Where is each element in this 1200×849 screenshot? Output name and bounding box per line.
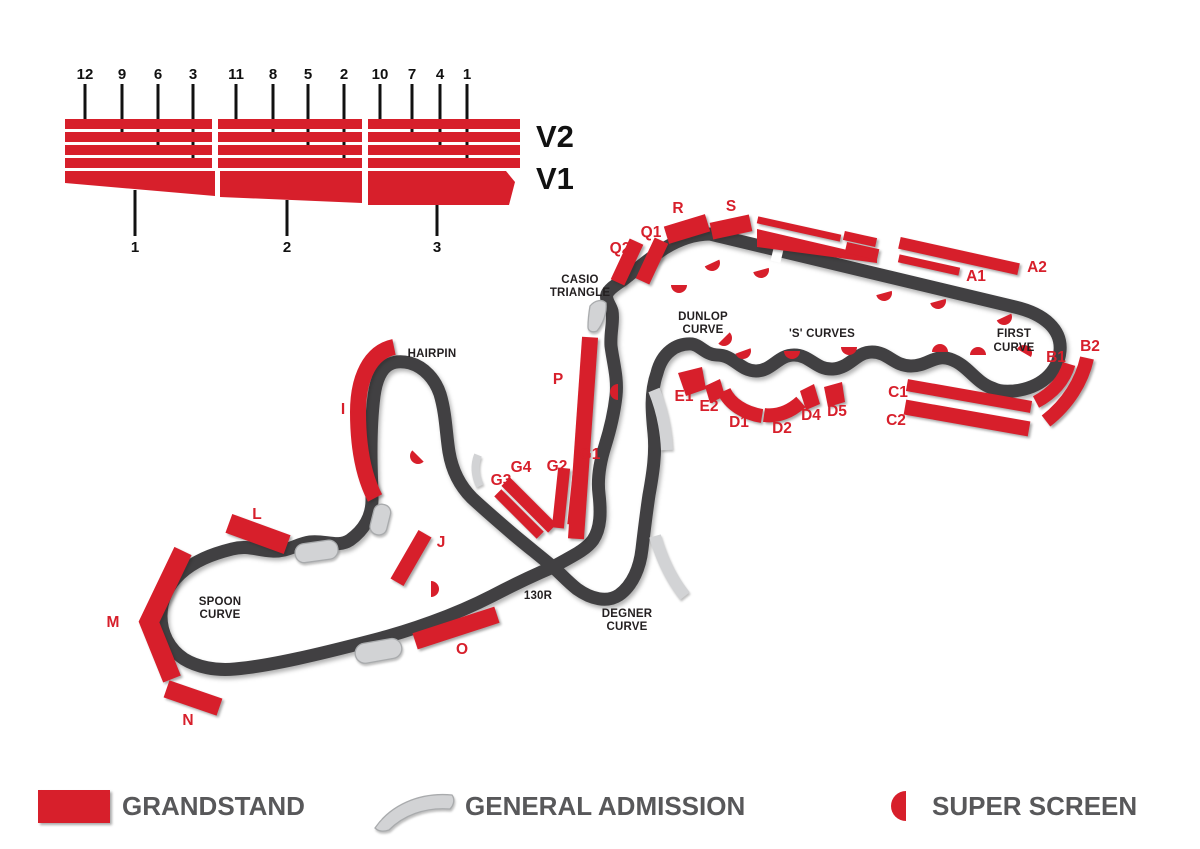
grandstand-g2[interactable] bbox=[552, 468, 570, 529]
stand-label-l: L bbox=[252, 506, 261, 523]
block-number: 3 bbox=[433, 239, 441, 256]
stand-label-d1: D1 bbox=[729, 414, 749, 431]
circuit-track bbox=[161, 234, 1060, 670]
legend: GRANDSTAND GENERAL ADMISSION SUPER SCREE… bbox=[38, 790, 1137, 831]
corner-label-first: CURVE bbox=[993, 342, 1034, 354]
v1-block-1[interactable] bbox=[65, 171, 215, 196]
v2-row[interactable] bbox=[368, 158, 520, 168]
stand-label-d4: D4 bbox=[801, 407, 821, 424]
row-number: 10 bbox=[372, 66, 389, 83]
stand-label-c2: C2 bbox=[886, 412, 906, 429]
legend-label-grandstand: GRANDSTAND bbox=[122, 791, 305, 821]
super-screen-swatch bbox=[891, 791, 906, 821]
v2-grandstand-rows[interactable] bbox=[65, 119, 520, 168]
stand-label-d2: D2 bbox=[772, 420, 792, 437]
stand-label-q1: Q1 bbox=[641, 224, 662, 241]
v1-label: V1 bbox=[536, 161, 574, 196]
v2-row[interactable] bbox=[218, 132, 362, 142]
stand-label-m: M bbox=[107, 614, 120, 631]
v2-row[interactable] bbox=[218, 119, 362, 129]
v2-row[interactable] bbox=[218, 158, 362, 168]
corner-label-first: FIRST bbox=[997, 328, 1031, 340]
stand-label-o: O bbox=[456, 641, 468, 658]
general-admission-area[interactable] bbox=[655, 536, 685, 596]
row-number: 1 bbox=[463, 66, 471, 83]
track-outline bbox=[161, 234, 1060, 670]
v1-block-2[interactable] bbox=[220, 171, 362, 203]
stand-label-b2: B2 bbox=[1080, 338, 1100, 355]
row-number: 5 bbox=[304, 66, 312, 83]
stand-label-c1: C1 bbox=[888, 384, 908, 401]
row-number: 6 bbox=[154, 66, 162, 83]
stand-label-j: J bbox=[437, 534, 446, 551]
stand-label-e1: E1 bbox=[675, 388, 694, 405]
stand-label-e2: E2 bbox=[700, 398, 719, 415]
stand-label-a2: A2 bbox=[1027, 259, 1047, 276]
corner-label-dunlop: DUNLOP bbox=[678, 311, 728, 323]
super-screen-icon bbox=[970, 347, 986, 355]
stand-label-d5: D5 bbox=[827, 403, 847, 420]
row-number: 11 bbox=[228, 66, 244, 83]
super-screen-icon bbox=[753, 268, 771, 280]
stand-label-g2: G2 bbox=[547, 458, 568, 475]
stand-label-q2: Q2 bbox=[610, 240, 631, 257]
row-number: 2 bbox=[340, 66, 348, 83]
v2-row[interactable] bbox=[368, 119, 520, 129]
v2-row[interactable] bbox=[368, 145, 520, 155]
stand-label-r: R bbox=[672, 200, 683, 217]
corner-label-130r: 130R bbox=[524, 590, 553, 602]
corner-label-casio: TRIANGLE bbox=[550, 287, 611, 299]
block-number: 1 bbox=[131, 239, 139, 256]
stand-label-g4: G4 bbox=[511, 459, 532, 476]
corner-label-spoon: CURVE bbox=[199, 609, 240, 621]
super-screen-icon bbox=[407, 450, 424, 467]
stand-label-b1: B1 bbox=[1046, 349, 1066, 366]
row-number: 4 bbox=[436, 66, 445, 83]
v2-row[interactable] bbox=[65, 119, 212, 129]
v2-row[interactable] bbox=[368, 132, 520, 142]
corner-label-degner: DEGNER bbox=[602, 608, 653, 620]
circuit-seating-map: 12 9 6 3 11 8 5 2 10 7 4 1 bbox=[0, 0, 1200, 849]
stand-label-i: I bbox=[341, 401, 345, 418]
block-number: 2 bbox=[283, 239, 291, 256]
v2-row[interactable] bbox=[65, 132, 212, 142]
general-admission-area[interactable] bbox=[476, 455, 480, 486]
circuit-map-svg: 12 9 6 3 11 8 5 2 10 7 4 1 bbox=[0, 0, 1200, 849]
corner-label-spoon: SPOON bbox=[199, 596, 242, 608]
super-screen-icon bbox=[930, 299, 948, 311]
corner-label-dunlop: CURVE bbox=[682, 324, 723, 336]
general-admission-area[interactable] bbox=[588, 301, 606, 332]
row-number: 8 bbox=[269, 66, 277, 83]
corner-label-hairpin: HAIRPIN bbox=[408, 348, 457, 360]
stand-label-s: S bbox=[726, 198, 736, 215]
pit-grandstand-diagram: 12 9 6 3 11 8 5 2 10 7 4 1 bbox=[65, 66, 574, 256]
v2-row[interactable] bbox=[65, 158, 212, 168]
v1-block-3[interactable] bbox=[368, 171, 515, 205]
stand-label-n: N bbox=[182, 712, 193, 729]
grandstand-d2[interactable] bbox=[764, 402, 801, 415]
super-screen-icon bbox=[997, 314, 1015, 328]
v1-grandstand-blocks[interactable] bbox=[65, 171, 515, 205]
row-number: 9 bbox=[118, 66, 126, 83]
super-screen-icon bbox=[671, 285, 687, 293]
stand-label-p: P bbox=[553, 371, 563, 388]
super-screen-icon bbox=[932, 344, 948, 352]
corner-label-casio: CASIO bbox=[561, 274, 598, 286]
legend-label-general-admission: GENERAL ADMISSION bbox=[465, 791, 745, 821]
row-number: 3 bbox=[189, 66, 197, 83]
grandstand-n[interactable] bbox=[164, 680, 223, 715]
super-screen-icon bbox=[705, 260, 723, 274]
v2-row[interactable] bbox=[65, 145, 212, 155]
v2-label: V2 bbox=[536, 119, 574, 154]
stand-label-g3: G3 bbox=[491, 472, 512, 489]
corner-label-degner: CURVE bbox=[606, 621, 647, 633]
row-number: 7 bbox=[408, 66, 416, 83]
row-number: 12 bbox=[77, 66, 94, 83]
v2-row[interactable] bbox=[218, 145, 362, 155]
stand-label-a1: A1 bbox=[966, 268, 986, 285]
general-admission-swatch bbox=[375, 795, 454, 831]
grandstand-swatch bbox=[38, 790, 110, 823]
grandstand-j[interactable] bbox=[391, 530, 432, 586]
super-screen-icon bbox=[431, 581, 439, 597]
corner-label-s-curves: 'S' CURVES bbox=[789, 328, 855, 340]
stand-label-g1: G1 bbox=[580, 446, 601, 463]
grandstand-d1[interactable] bbox=[724, 391, 762, 416]
legend-label-super-screen: SUPER SCREEN bbox=[932, 791, 1137, 821]
super-screen-icon bbox=[876, 291, 894, 303]
